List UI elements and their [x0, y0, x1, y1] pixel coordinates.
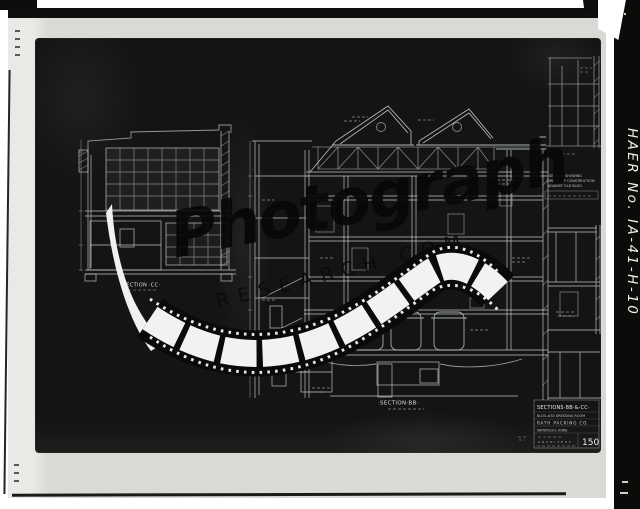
title-block: SECTIONS·BB·&·CC· BLDG.#30 DRESSING ROOM… [518, 400, 599, 448]
cc-footing-right [221, 274, 232, 281]
cc-lower-room [90, 221, 161, 270]
title-block-company: RATH PACKING CO. [537, 421, 589, 426]
bb-pedestal [378, 364, 392, 397]
photo-of-architectural-drawing: { "archive": { "haer_label": "HAER No. I… [0, 0, 640, 509]
bb-basement [310, 358, 522, 396]
bb-roof-vent-2 [453, 123, 462, 132]
architect-label: ARCHITECT [538, 440, 573, 444]
bb-right-wing [548, 225, 604, 398]
bb-tower-door-2 [270, 306, 282, 328]
title-block-title: SECTIONS·BB·&·CC· [537, 405, 590, 411]
detail-hatch [594, 61, 599, 144]
bb-pit [377, 362, 439, 385]
section-bb-label: ·SECTION·BB· [378, 401, 419, 407]
sheet-number: 150 [582, 438, 599, 448]
bb-right-wing-hatch [596, 236, 600, 320]
cc-left-block-hatch [79, 151, 88, 170]
blueprint-line-art: ·SECTION ·CC· ·SECTION· [0, 0, 640, 509]
cc-footing-left [85, 274, 96, 281]
title-block-subtitle: BLDG.#30 DRESSING ROOM [537, 414, 585, 418]
bb-basement-box [420, 369, 438, 383]
title-block-location: WATERLOO, IOWA. [537, 429, 568, 433]
cc-small-window [120, 229, 134, 247]
bb-roof-vent-1 [377, 123, 386, 132]
cc-dim-line [79, 140, 83, 271]
